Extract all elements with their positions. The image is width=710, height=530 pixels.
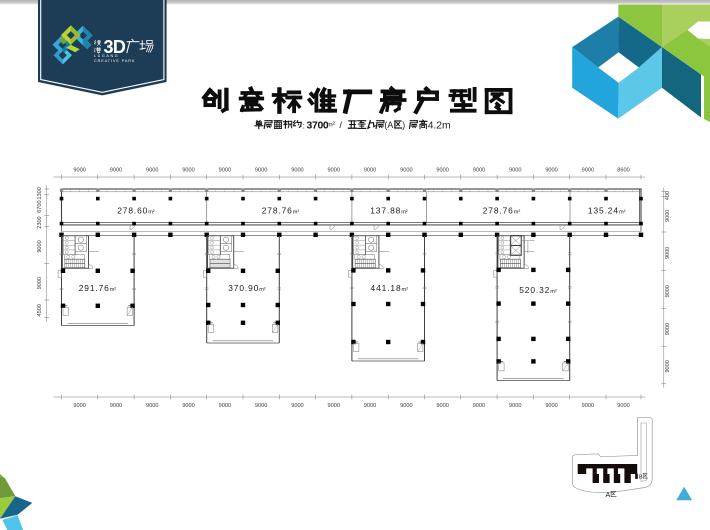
svg-text:9000: 9000 <box>146 403 158 409</box>
svg-text:9000: 9000 <box>665 247 671 259</box>
svg-text:CREATIVE PARK: CREATIVE PARK <box>94 59 135 63</box>
svg-text:LUGANG: LUGANG <box>94 54 119 58</box>
svg-text:9000: 9000 <box>400 403 412 409</box>
svg-text:9000: 9000 <box>146 168 158 174</box>
svg-text:9000: 9000 <box>364 168 376 174</box>
svg-text:9000: 9000 <box>665 360 671 372</box>
svg-text:9000: 9000 <box>182 403 194 409</box>
svg-text:9000: 9000 <box>665 285 671 297</box>
svg-text:9000: 9000 <box>473 168 485 174</box>
svg-text:9000: 9000 <box>473 403 485 409</box>
svg-text:9000: 9000 <box>665 323 671 335</box>
svg-text:9000: 9000 <box>509 168 521 174</box>
svg-text:9000: 9000 <box>509 403 521 409</box>
svg-text:1300: 1300 <box>37 187 43 199</box>
svg-text:3700: 3700 <box>307 121 329 132</box>
svg-text:9000: 9000 <box>328 403 340 409</box>
svg-text:B: B <box>639 474 643 480</box>
svg-text:9000: 9000 <box>37 277 43 289</box>
svg-text:4.2m: 4.2m <box>428 120 451 131</box>
svg-text:9000: 9000 <box>364 403 376 409</box>
svg-text:4500: 4500 <box>37 304 43 316</box>
svg-text:9000: 9000 <box>110 403 122 409</box>
svg-text:6700: 6700 <box>37 200 43 212</box>
svg-text:400: 400 <box>665 191 671 200</box>
svg-text:(A: (A <box>384 120 393 130</box>
svg-text:9000: 9000 <box>219 168 231 174</box>
svg-text:9000: 9000 <box>37 240 43 252</box>
svg-text:9000: 9000 <box>219 403 231 409</box>
svg-text:9000: 9000 <box>255 403 267 409</box>
svg-text:9000: 9000 <box>328 168 340 174</box>
svg-text:9000: 9000 <box>545 168 557 174</box>
svg-text::: : <box>303 121 305 130</box>
svg-text:A: A <box>606 492 611 499</box>
svg-text:9000: 9000 <box>582 403 594 409</box>
svg-text:9000: 9000 <box>545 403 557 409</box>
svg-text:9000: 9000 <box>665 210 671 222</box>
svg-text:9000: 9000 <box>291 168 303 174</box>
svg-text:9000: 9000 <box>582 168 594 174</box>
svg-text:9000: 9000 <box>73 403 85 409</box>
svg-text:9000: 9000 <box>182 168 194 174</box>
svg-text:9000: 9000 <box>617 403 629 409</box>
svg-text:9000: 9000 <box>436 403 448 409</box>
svg-text:9000: 9000 <box>73 168 85 174</box>
svg-text:m²: m² <box>327 122 336 129</box>
svg-text:/: / <box>339 120 342 131</box>
svg-text:9000: 9000 <box>255 168 267 174</box>
svg-text:): ) <box>402 120 405 130</box>
svg-text:9000: 9000 <box>291 403 303 409</box>
svg-text:2300: 2300 <box>37 216 43 228</box>
svg-text:9000: 9000 <box>400 168 412 174</box>
svg-text:9000: 9000 <box>110 168 122 174</box>
svg-text:8600: 8600 <box>617 168 629 174</box>
svg-text:9000: 9000 <box>436 168 448 174</box>
